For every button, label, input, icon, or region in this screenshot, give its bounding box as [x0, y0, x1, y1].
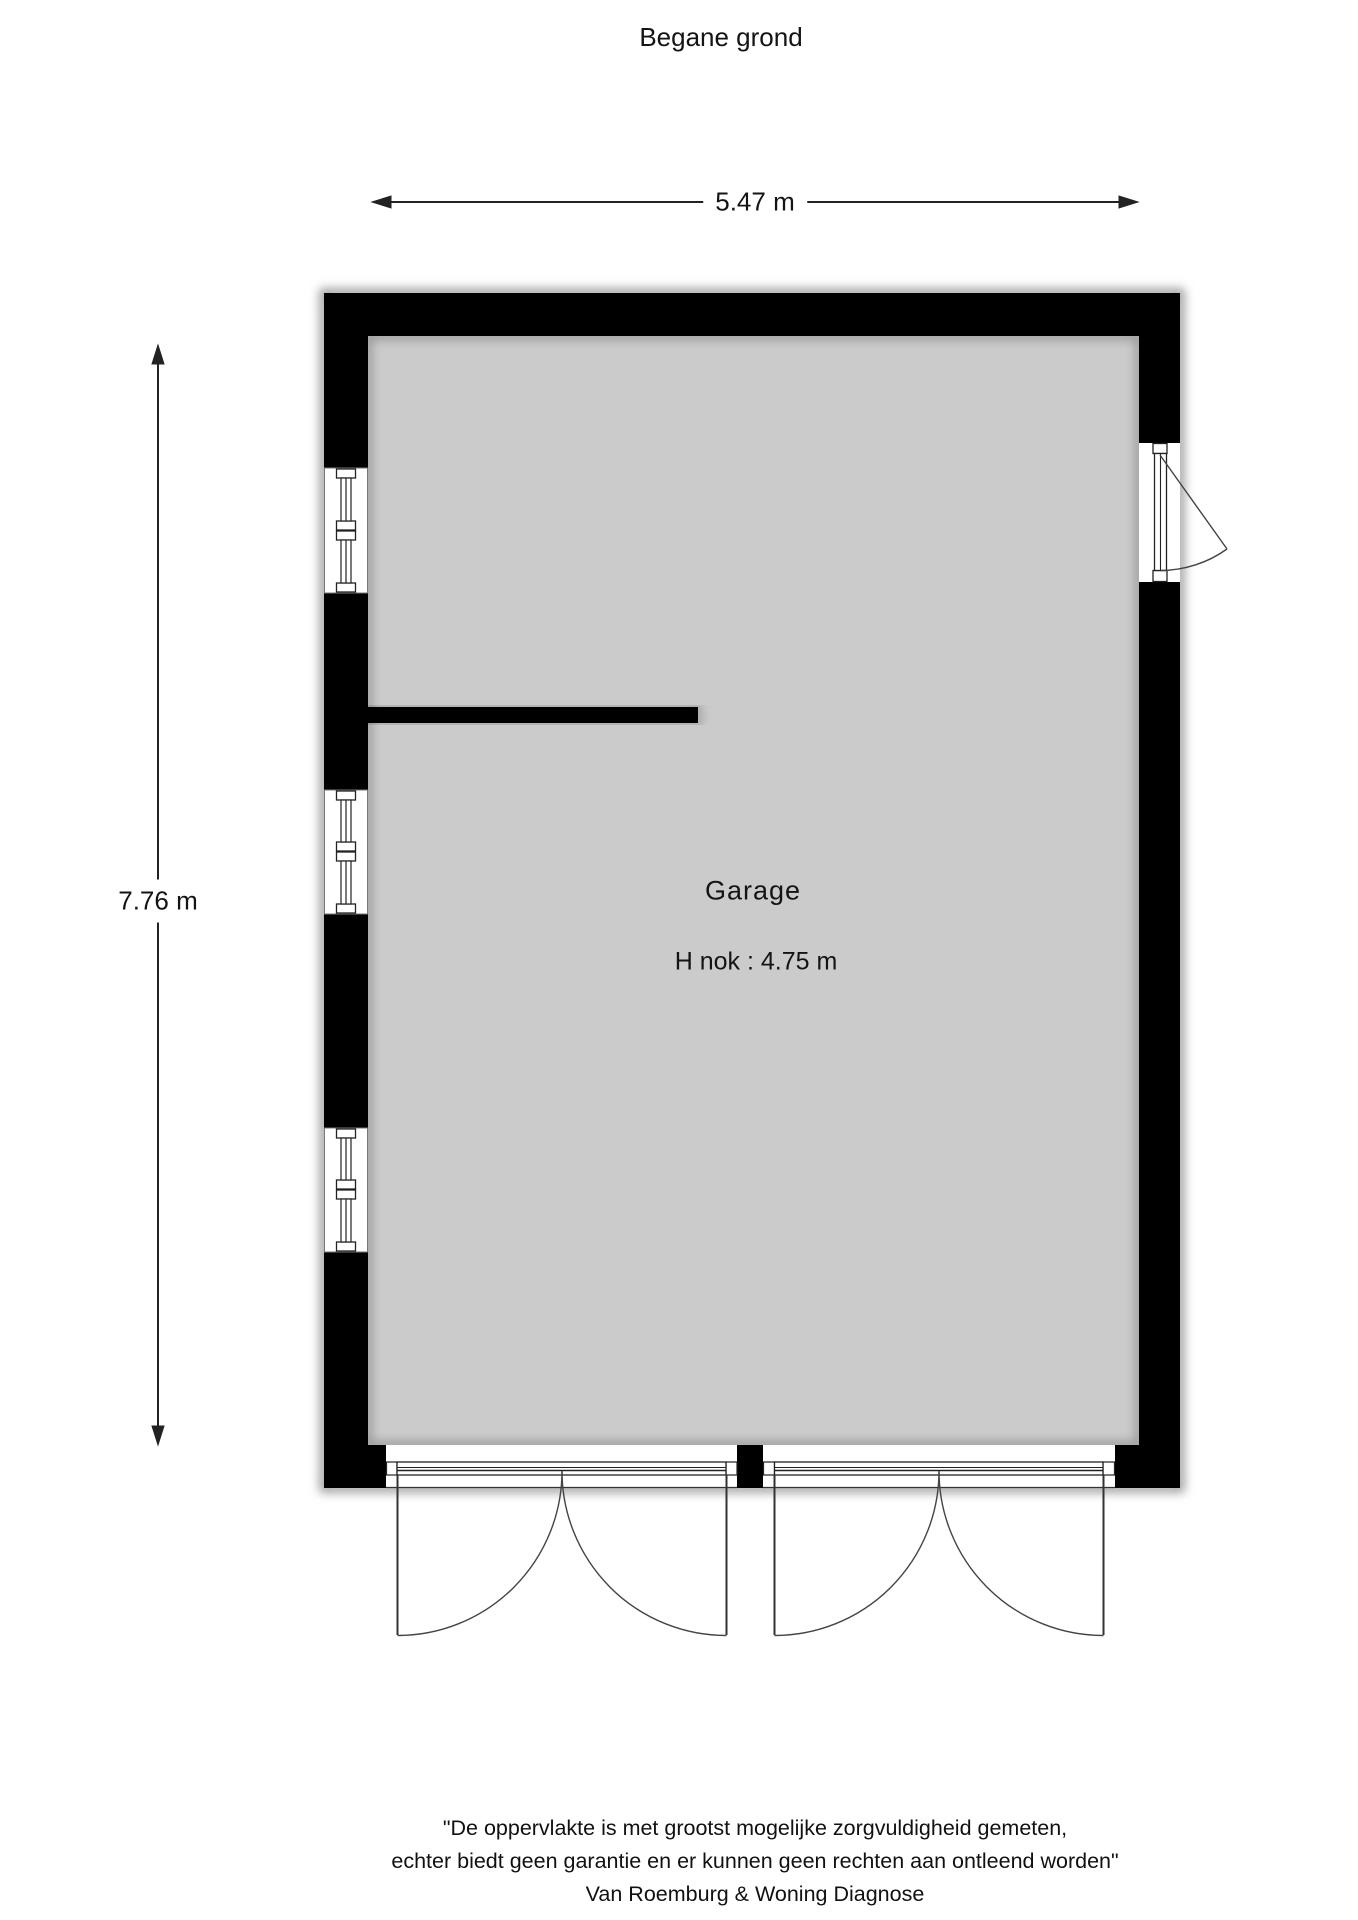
wall-top	[324, 293, 1180, 336]
garage-door-left	[386, 1445, 737, 1636]
floorplan-page: Begane grond 5.47 m 7.76 m Garage H nok …	[0, 0, 1358, 1920]
interior-wall	[368, 707, 698, 723]
disclaimer-line-3: Van Roemburg & Woning Diagnose	[391, 1878, 1118, 1911]
arrow-right-icon	[1119, 196, 1138, 208]
garage-door-left-swing-arc-b	[562, 1471, 727, 1636]
disclaimer: "De oppervlakte is met grootst mogelijke…	[391, 1812, 1118, 1911]
garage-door-right	[763, 1445, 1115, 1636]
window-3	[325, 1128, 368, 1252]
garage-door-right-swing-arc-b	[939, 1471, 1104, 1636]
room-ridge-height-label: H nok : 4.75 m	[675, 948, 838, 977]
arrow-down-icon	[152, 1426, 164, 1445]
width-dimension-label: 5.47 m	[703, 184, 807, 221]
garage-door-left-swing-arc-a	[398, 1471, 563, 1636]
window-2	[325, 790, 368, 914]
garage-door-right-swing-arc-a	[775, 1471, 940, 1636]
room-name-label: Garage	[705, 876, 801, 907]
disclaimer-line-1: "De oppervlakte is met grootst mogelijke…	[391, 1812, 1118, 1845]
height-dimension-label: 7.76 m	[114, 880, 202, 923]
disclaimer-line-2: echter biedt geen garantie en er kunnen …	[391, 1845, 1118, 1878]
arrow-up-icon	[152, 345, 164, 364]
window-1	[325, 468, 368, 593]
arrow-left-icon	[372, 196, 391, 208]
page-title: Begane grond	[639, 22, 802, 53]
